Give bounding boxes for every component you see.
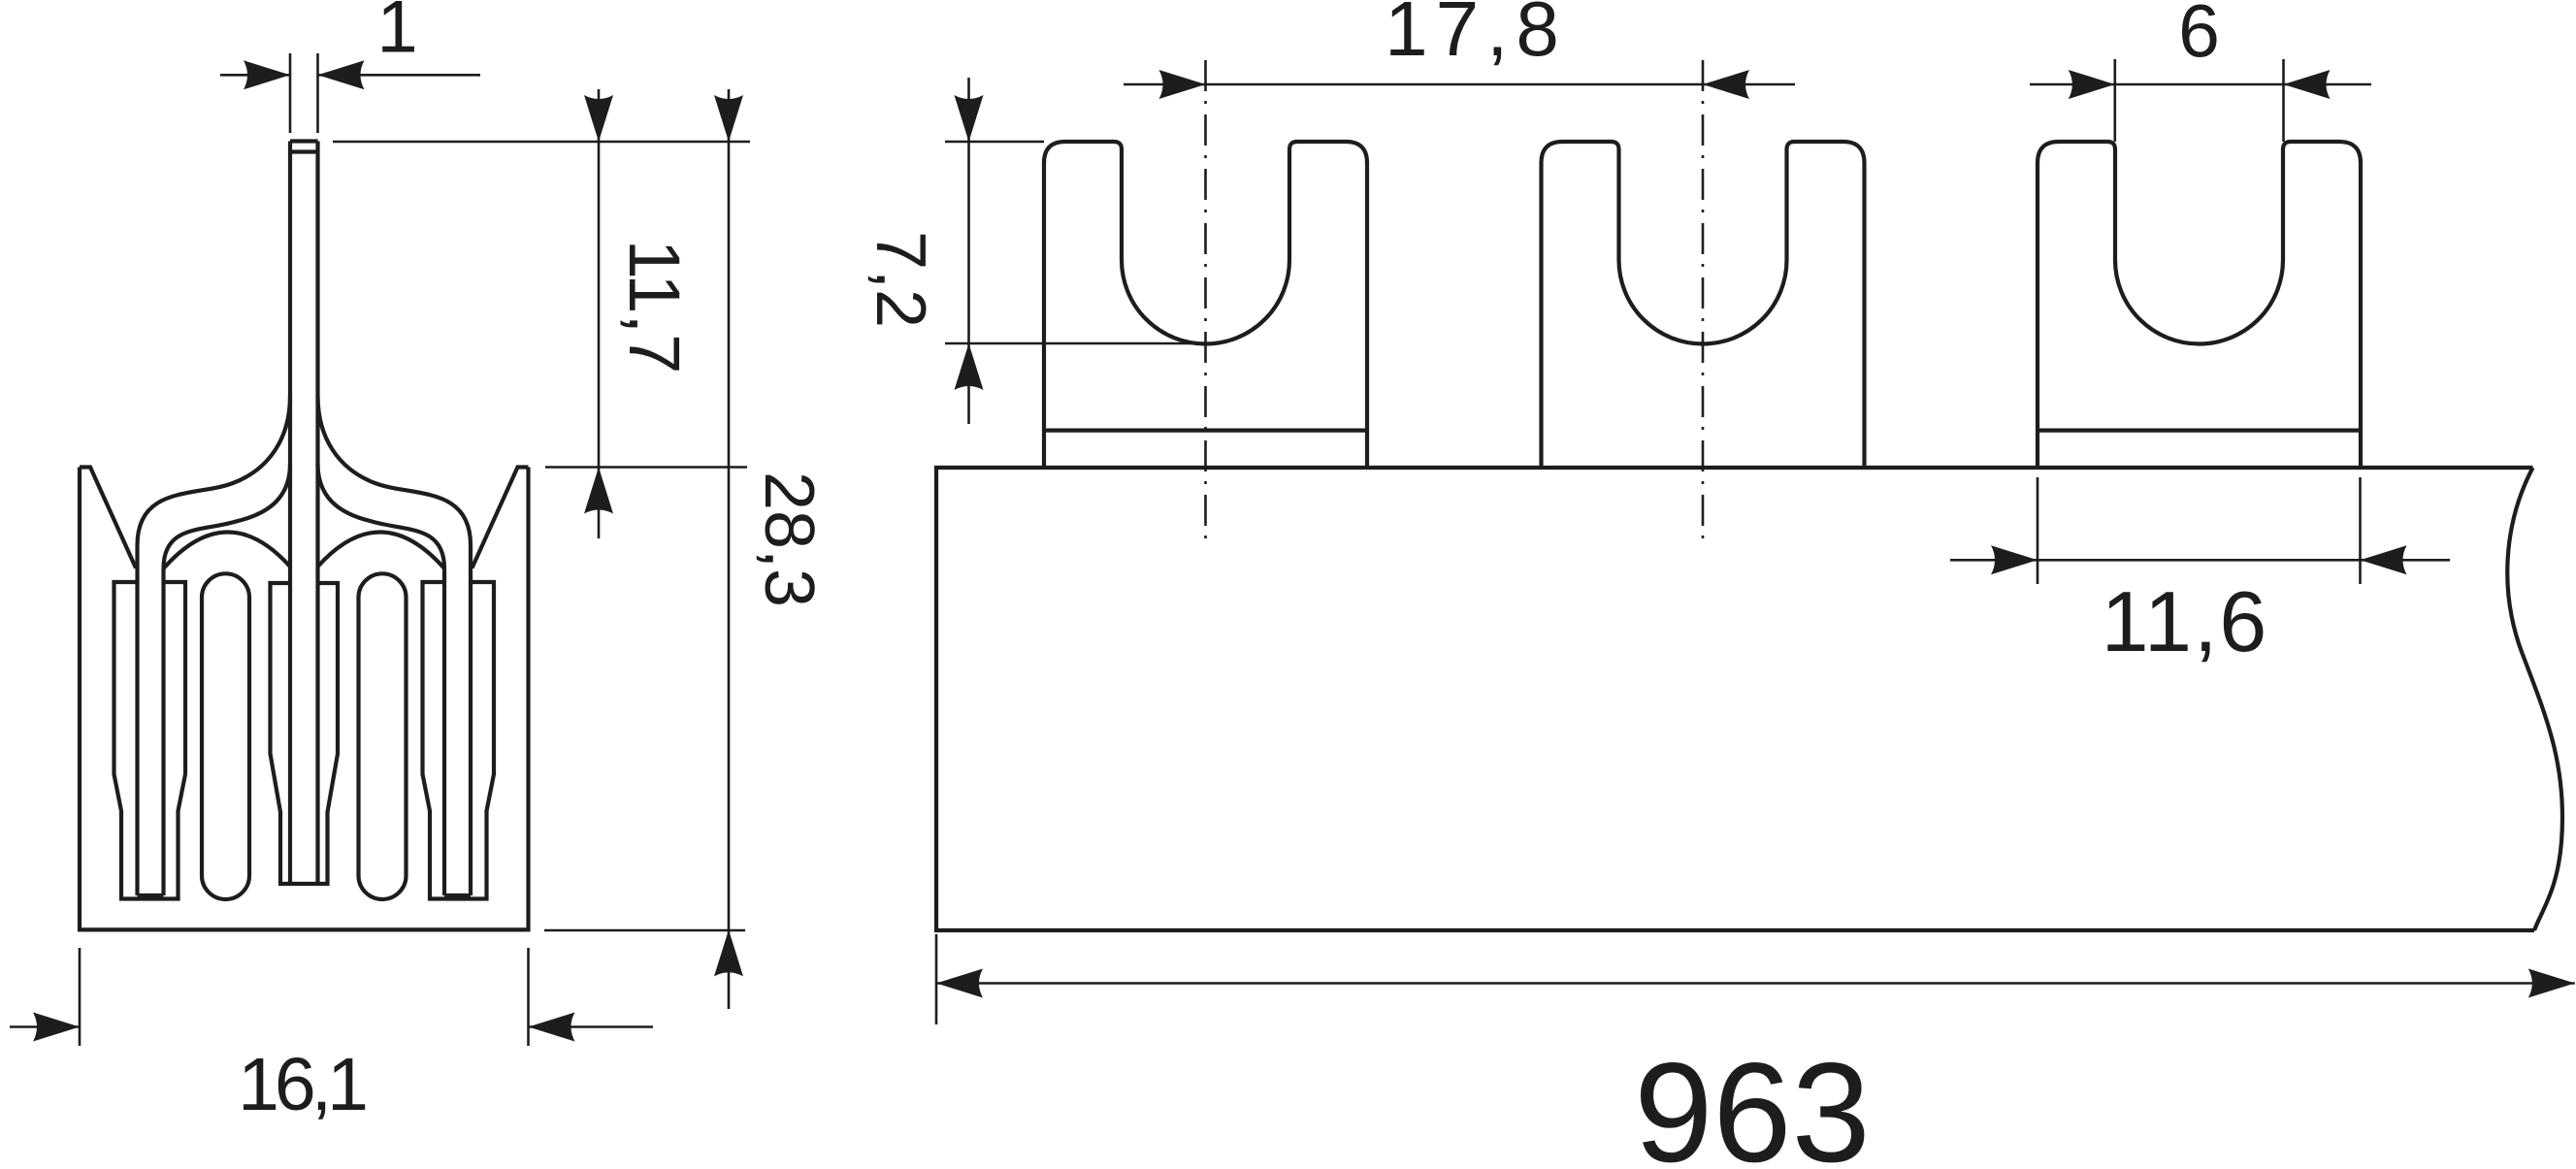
svg-text:6: 6	[2178, 0, 2220, 74]
svg-text:28,3: 28,3	[750, 471, 828, 607]
svg-text:11,6: 11,6	[2102, 573, 2269, 669]
svg-text:11,7: 11,7	[614, 240, 695, 374]
svg-text:963: 963	[1634, 1033, 1871, 1164]
svg-text:7,2: 7,2	[862, 231, 939, 328]
svg-text:16,1: 16,1	[238, 1043, 366, 1126]
svg-text:1: 1	[376, 0, 417, 69]
svg-text:17,8: 17,8	[1385, 0, 1567, 72]
